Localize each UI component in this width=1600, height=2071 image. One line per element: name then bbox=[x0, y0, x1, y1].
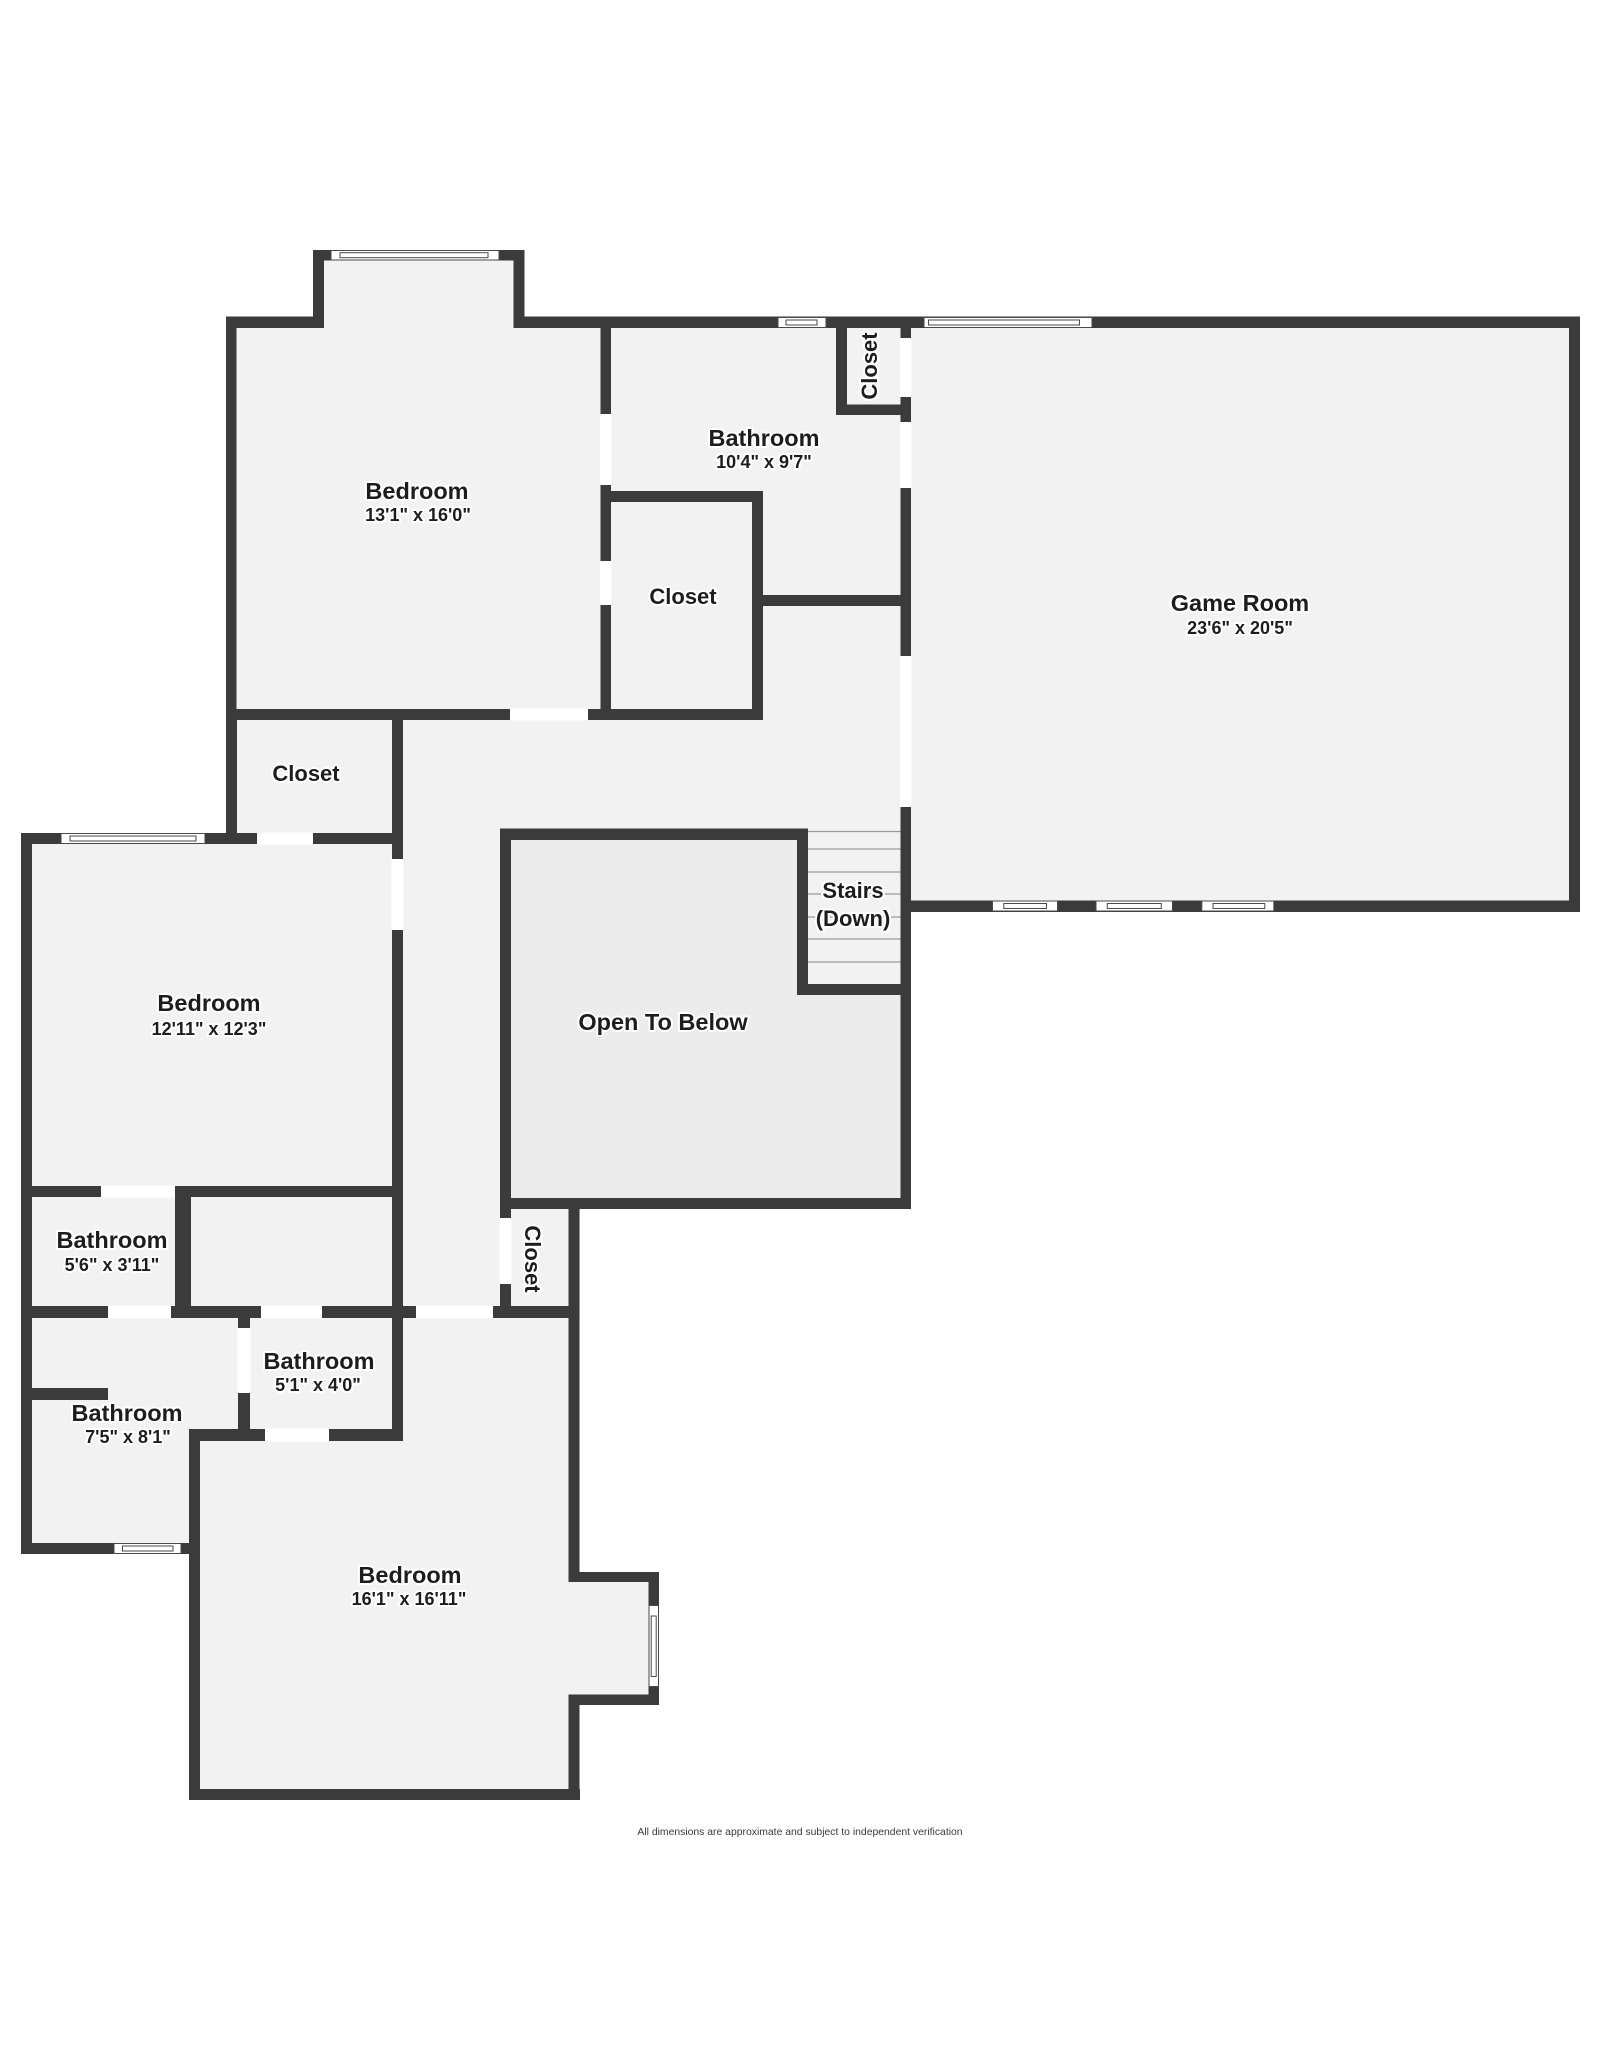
svg-text:7'5" x 8'1": 7'5" x 8'1" bbox=[85, 1427, 171, 1447]
svg-text:12'11" x 12'3": 12'11" x 12'3" bbox=[152, 1019, 267, 1039]
svg-text:(Down): (Down) bbox=[816, 906, 891, 931]
svg-text:Bedroom: Bedroom bbox=[358, 1562, 461, 1588]
svg-text:5'6" x 3'11": 5'6" x 3'11" bbox=[65, 1255, 160, 1275]
svg-text:23'6" x 20'5": 23'6" x 20'5" bbox=[1187, 618, 1293, 638]
svg-text:Game Room: Game Room bbox=[1171, 590, 1309, 616]
svg-text:10'4" x 9'7": 10'4" x 9'7" bbox=[716, 452, 812, 472]
svg-text:Closet: Closet bbox=[649, 584, 717, 609]
svg-text:Closet: Closet bbox=[520, 1225, 545, 1293]
svg-text:Bedroom: Bedroom bbox=[365, 478, 468, 504]
svg-text:Bedroom: Bedroom bbox=[157, 990, 260, 1016]
svg-text:Bathroom: Bathroom bbox=[72, 1400, 183, 1426]
svg-text:Bathroom: Bathroom bbox=[709, 425, 820, 451]
svg-text:5'1" x 4'0": 5'1" x 4'0" bbox=[275, 1375, 361, 1395]
svg-text:Bathroom: Bathroom bbox=[57, 1227, 168, 1253]
svg-text:All dimensions are approximate: All dimensions are approximate and subje… bbox=[637, 1827, 962, 1838]
svg-text:13'1" x 16'0": 13'1" x 16'0" bbox=[365, 505, 471, 525]
svg-text:Closet: Closet bbox=[857, 332, 882, 400]
svg-text:Closet: Closet bbox=[272, 761, 340, 786]
svg-text:16'1" x 16'11": 16'1" x 16'11" bbox=[352, 1589, 467, 1609]
svg-text:Bathroom: Bathroom bbox=[264, 1348, 375, 1374]
svg-text:Open To Below: Open To Below bbox=[578, 1009, 748, 1035]
svg-text:Stairs: Stairs bbox=[822, 878, 883, 903]
